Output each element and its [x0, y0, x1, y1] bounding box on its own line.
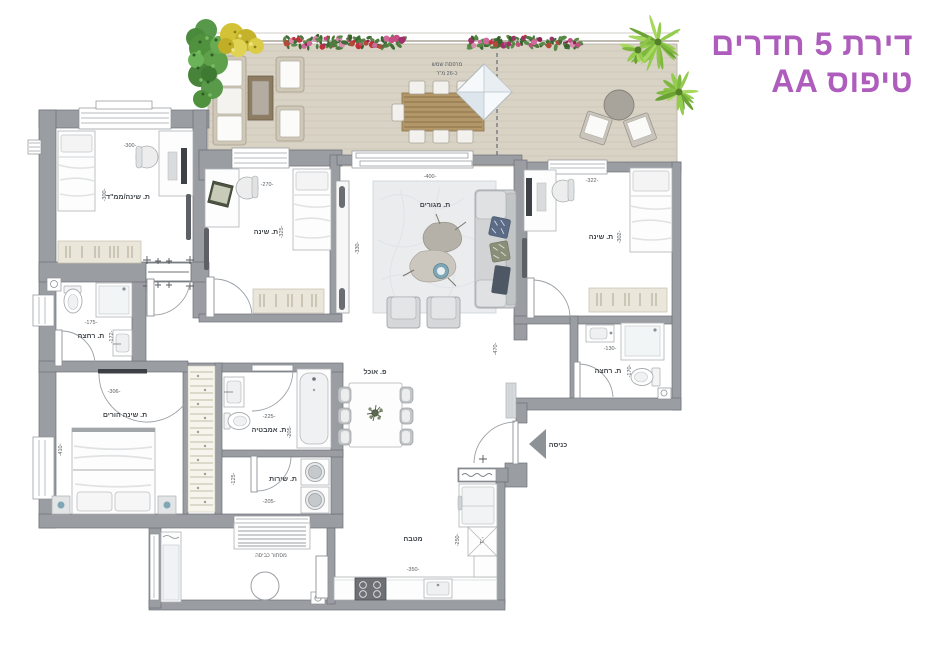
svg-text:-350-: -350-: [407, 567, 420, 573]
svg-text:-400-: -400-: [424, 174, 437, 180]
svg-text:ת. מגורים: ת. מגורים: [420, 202, 451, 209]
svg-text:-205-: -205-: [263, 499, 276, 505]
svg-text:-125-: -125-: [231, 472, 237, 485]
svg-text:-300-: -300-: [102, 188, 108, 201]
svg-text:-300-: -300-: [124, 143, 137, 149]
svg-text:-325-: -325-: [279, 225, 285, 238]
svg-text:ת. רחצה: ת. רחצה: [78, 333, 105, 340]
svg-text:פ. אוכל: פ. אוכל: [363, 368, 387, 376]
svg-text:ת. רחצה: ת. רחצה: [595, 368, 622, 375]
svg-text:-130-: -130-: [604, 346, 617, 352]
svg-text:מטבח: מטבח: [403, 536, 422, 543]
svg-text:ת. שינה: ת. שינה: [589, 234, 613, 241]
svg-text:-322-: -322-: [586, 178, 599, 184]
svg-text:-170-: -170-: [627, 364, 633, 377]
svg-text:-330-: -330-: [355, 241, 361, 254]
svg-text:-270-: -270-: [261, 182, 274, 188]
svg-text:ת. שירות: ת. שירות: [269, 476, 297, 483]
svg-text:-470-: -470-: [493, 342, 499, 355]
svg-text:ב.י.: ב.י.: [478, 537, 484, 545]
svg-text:-225-: -225-: [263, 414, 276, 420]
svg-text:-250-: -250-: [455, 533, 461, 546]
svg-text:ת. שינה הורים: ת. שינה הורים: [103, 412, 147, 419]
svg-text:AA טיפוס: AA טיפוס: [771, 63, 913, 99]
svg-text:-205-: -205-: [287, 425, 293, 438]
svg-text:מסתור כביסה: מסתור כביסה: [255, 553, 287, 559]
svg-text:כניסה: כניסה: [549, 442, 568, 449]
svg-text:-306-: -306-: [108, 389, 121, 395]
svg-text:-302-: -302-: [617, 230, 623, 243]
svg-text:-175-: -175-: [85, 320, 98, 326]
svg-text:ת. אמבטיה: ת. אמבטיה: [252, 427, 287, 434]
svg-text:דירת 5 חדרים: דירת 5 חדרים: [711, 26, 913, 62]
svg-text:ת. שינה/ממ"ד: ת. שינה/ממ"ד: [106, 194, 150, 201]
svg-text:-410-: -410-: [58, 443, 64, 456]
svg-text:-172-: -172-: [109, 330, 115, 343]
svg-text:מרפסת שמש: מרפסת שמש: [432, 62, 463, 68]
svg-text:כ-26 מ"ר: כ-26 מ"ר: [436, 71, 457, 77]
svg-text:ת. שינה: ת. שינה: [254, 229, 278, 236]
